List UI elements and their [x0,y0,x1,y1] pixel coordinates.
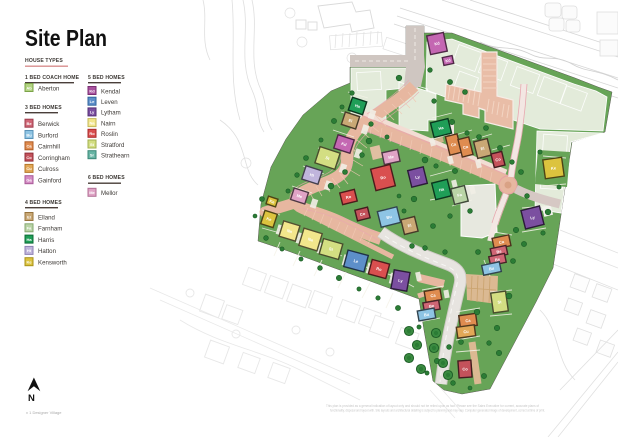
svg-text:Ro: Ro [89,131,95,136]
svg-text:St: St [90,142,95,147]
svg-text:Ke: Ke [26,260,32,265]
svg-text:Roslin: Roslin [101,131,118,138]
svg-text:Kensworth: Kensworth [38,260,67,267]
svg-text:Bu: Bu [26,132,32,137]
svg-text:This plan is provided as a gen: This plan is provided as a general indic… [326,404,539,408]
svg-text:Harris: Harris [38,237,54,244]
svg-text:Na: Na [89,120,95,125]
svg-text:Co: Co [26,155,32,160]
svg-text:Strathearn: Strathearn [101,153,129,160]
svg-text:Hatton: Hatton [38,248,56,255]
svg-text:Be: Be [26,121,32,126]
svg-text:Lytham: Lytham [101,110,121,117]
svg-text:Ca: Ca [26,144,32,149]
svg-text:Leven: Leven [101,99,118,106]
svg-text:Culross: Culross [38,166,59,173]
svg-text:functionality, disposal and la: functionality, disposal and layout with.… [330,409,545,413]
svg-text:Ab: Ab [26,85,32,90]
svg-text:5 BED HOMES: 5 BED HOMES [88,75,125,81]
svg-text:Aberton: Aberton [38,85,59,92]
svg-text:Nairn: Nairn [101,120,116,127]
svg-text:Site Plan: Site Plan [25,25,107,51]
svg-text:HOUSE TYPES: HOUSE TYPES [25,58,63,64]
svg-text:Co: Co [462,366,468,371]
svg-text:Berwick: Berwick [38,121,60,128]
svg-text:6 BED HOMES: 6 BED HOMES [88,175,125,181]
svg-text:Sr: Sr [90,153,95,158]
svg-text:Kendal: Kendal [101,88,120,95]
svg-text:Ha: Ha [26,237,32,242]
svg-text:3 BED HOMES: 3 BED HOMES [25,105,62,111]
svg-text:Le: Le [90,99,95,104]
svg-text:Farnham: Farnham [38,226,62,233]
svg-text:Elland: Elland [38,214,55,221]
svg-text:Me: Me [89,190,95,195]
svg-text:Fa: Fa [27,226,32,231]
svg-text:Burford: Burford [38,132,58,139]
svg-text:Ga: Ga [26,178,32,183]
svg-text:N: N [28,393,35,404]
svg-text:Ly: Ly [90,110,95,115]
svg-text:Kd: Kd [89,88,95,93]
svg-text:Gainford: Gainford [38,178,61,185]
svg-text:Mellor: Mellor [101,190,118,197]
svg-text:Corringham: Corringham [38,155,70,162]
svg-text:Stratford: Stratford [101,142,124,149]
svg-text:v 1 Designer Village: v 1 Designer Village [26,410,62,415]
svg-text:4 BED HOMES: 4 BED HOMES [25,200,62,206]
svg-text:Cu: Cu [26,166,32,171]
svg-text:El: El [27,214,31,219]
svg-text:1 BED COACH HOME: 1 BED COACH HOME [25,75,80,81]
svg-text:Ht: Ht [27,248,32,253]
svg-text:Cairnhill: Cairnhill [38,144,60,151]
